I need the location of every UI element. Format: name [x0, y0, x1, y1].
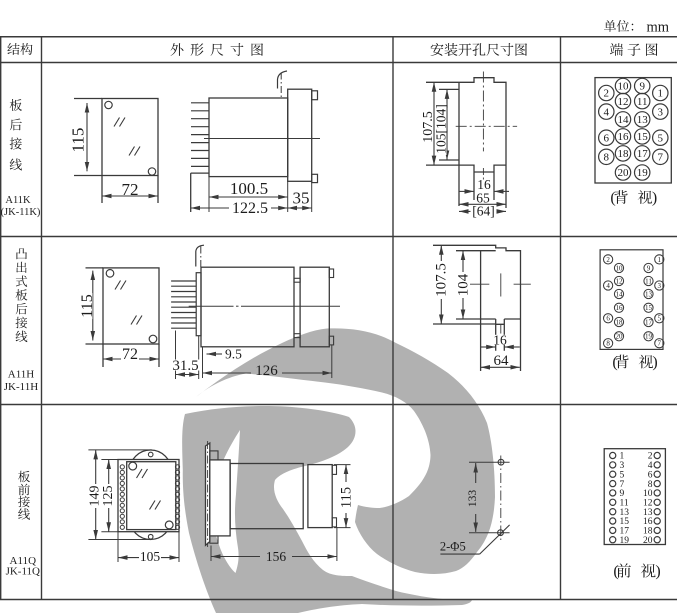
svg-text:17: 17	[645, 318, 653, 326]
svg-text:3: 3	[658, 106, 664, 118]
svg-text:7: 7	[658, 152, 664, 164]
svg-text:2: 2	[604, 88, 610, 100]
svg-text:): )	[655, 563, 660, 580]
svg-text:126: 126	[255, 363, 278, 379]
svg-text:8: 8	[604, 152, 610, 164]
svg-text:9.5: 9.5	[225, 346, 242, 361]
svg-text:19: 19	[620, 536, 630, 546]
svg-text:(: (	[610, 189, 615, 206]
svg-text:105: 105	[140, 549, 161, 564]
svg-text:2: 2	[606, 256, 610, 264]
svg-text:16: 16	[616, 304, 624, 312]
svg-text:156: 156	[266, 549, 287, 564]
svg-text:115: 115	[338, 487, 354, 508]
svg-text:A11K: A11K	[5, 195, 31, 206]
svg-text:14: 14	[616, 290, 624, 298]
svg-text:15: 15	[637, 131, 649, 143]
svg-text:17: 17	[637, 148, 649, 160]
svg-text:122.5: 122.5	[232, 200, 268, 217]
svg-text:20: 20	[643, 536, 653, 546]
svg-text:5: 5	[658, 315, 662, 323]
svg-text:20: 20	[618, 167, 630, 179]
svg-text:JK-11Q: JK-11Q	[6, 566, 40, 578]
svg-text:133: 133	[467, 490, 479, 508]
svg-text:9: 9	[647, 264, 651, 272]
svg-text:14: 14	[618, 114, 630, 126]
svg-text:19: 19	[645, 333, 653, 341]
svg-text:105[104]: 105[104]	[434, 104, 449, 154]
svg-text:): )	[652, 354, 657, 371]
svg-text:(: (	[613, 563, 618, 580]
svg-text:20: 20	[616, 333, 624, 341]
svg-text:35: 35	[293, 188, 310, 207]
svg-text:7: 7	[658, 340, 662, 348]
svg-text:100.5: 100.5	[230, 179, 268, 198]
svg-text:18: 18	[618, 148, 630, 160]
svg-text:125: 125	[101, 486, 116, 507]
svg-text:13: 13	[645, 290, 653, 298]
svg-text:16: 16	[493, 332, 507, 347]
svg-text:13: 13	[637, 114, 649, 126]
svg-text:3: 3	[658, 282, 662, 290]
svg-text:10: 10	[618, 81, 630, 93]
svg-text:8: 8	[606, 340, 610, 348]
svg-text:1: 1	[658, 256, 662, 264]
svg-text:6: 6	[604, 132, 610, 144]
svg-text:115: 115	[68, 128, 87, 153]
svg-text:[64]: [64]	[472, 204, 495, 219]
svg-text:1: 1	[658, 88, 664, 100]
svg-text:72: 72	[122, 180, 139, 199]
svg-text:11: 11	[637, 96, 648, 108]
svg-text:12: 12	[618, 96, 629, 108]
svg-text:15: 15	[645, 304, 653, 312]
svg-text:11: 11	[645, 277, 652, 285]
svg-text:16: 16	[618, 131, 630, 143]
svg-text:5: 5	[658, 132, 664, 144]
svg-text:A11H: A11H	[8, 369, 35, 381]
svg-text:12: 12	[616, 277, 624, 285]
svg-text:72: 72	[122, 346, 138, 363]
svg-text:mm: mm	[647, 19, 670, 35]
svg-text:JK-11H: JK-11H	[4, 381, 38, 393]
svg-text:2-Φ5: 2-Φ5	[440, 540, 466, 554]
svg-text:9: 9	[639, 81, 645, 93]
svg-text:6: 6	[606, 315, 610, 323]
svg-text:18: 18	[616, 318, 624, 326]
svg-text:4: 4	[604, 106, 610, 118]
svg-text:): )	[652, 189, 657, 206]
svg-text:104: 104	[456, 273, 472, 296]
svg-text:31.5: 31.5	[172, 358, 198, 374]
svg-text:115: 115	[79, 294, 96, 317]
svg-text:19: 19	[637, 167, 649, 179]
svg-text:(JK-11K): (JK-11K)	[1, 207, 41, 218]
svg-text:64: 64	[494, 353, 510, 369]
svg-text:107.5: 107.5	[433, 263, 449, 297]
svg-text:10: 10	[616, 264, 624, 272]
svg-text:4: 4	[606, 282, 610, 290]
